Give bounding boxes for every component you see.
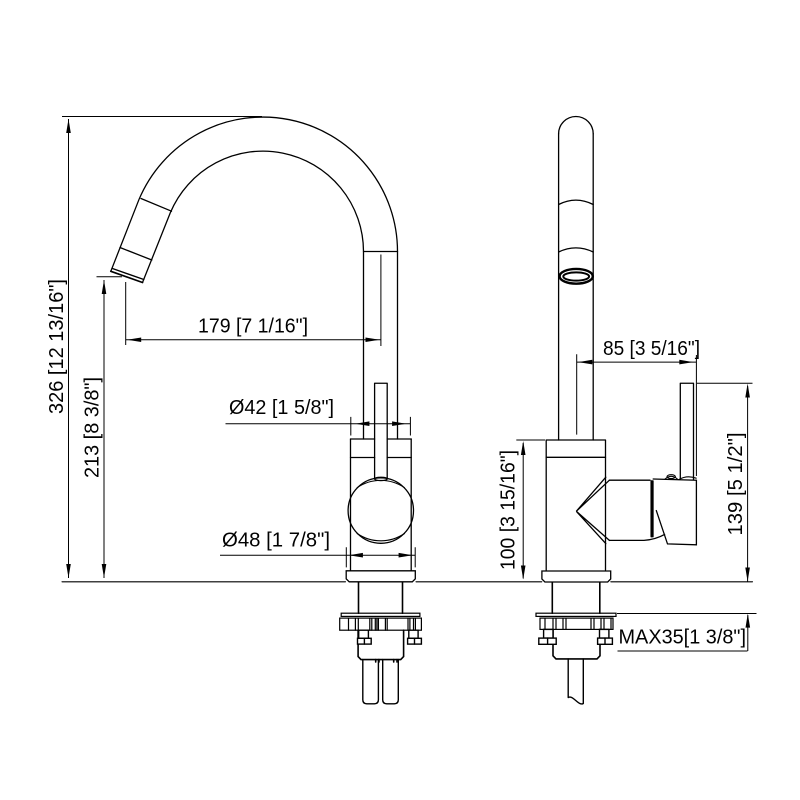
svg-text:MAX35[1 3/8"]: MAX35[1 3/8"] [619,627,747,649]
svg-text:139 [5 1/2"]: 139 [5 1/2"] [725,433,747,536]
svg-text:179 [7 1/16"]: 179 [7 1/16"] [198,316,308,338]
svg-text:85 [3 5/16"]: 85 [3 5/16"] [603,338,700,360]
svg-text:213 [8 3/8"]: 213 [8 3/8"] [82,377,104,478]
svg-text:Ø48 [1 7/8"]: Ø48 [1 7/8"] [222,530,330,552]
svg-text:Ø42 [1 5/8"]: Ø42 [1 5/8"] [229,397,334,419]
svg-text:326 [12 13/16"]: 326 [12 13/16"] [46,279,68,414]
svg-text:100 [3 15/16"]: 100 [3 15/16"] [498,450,520,570]
